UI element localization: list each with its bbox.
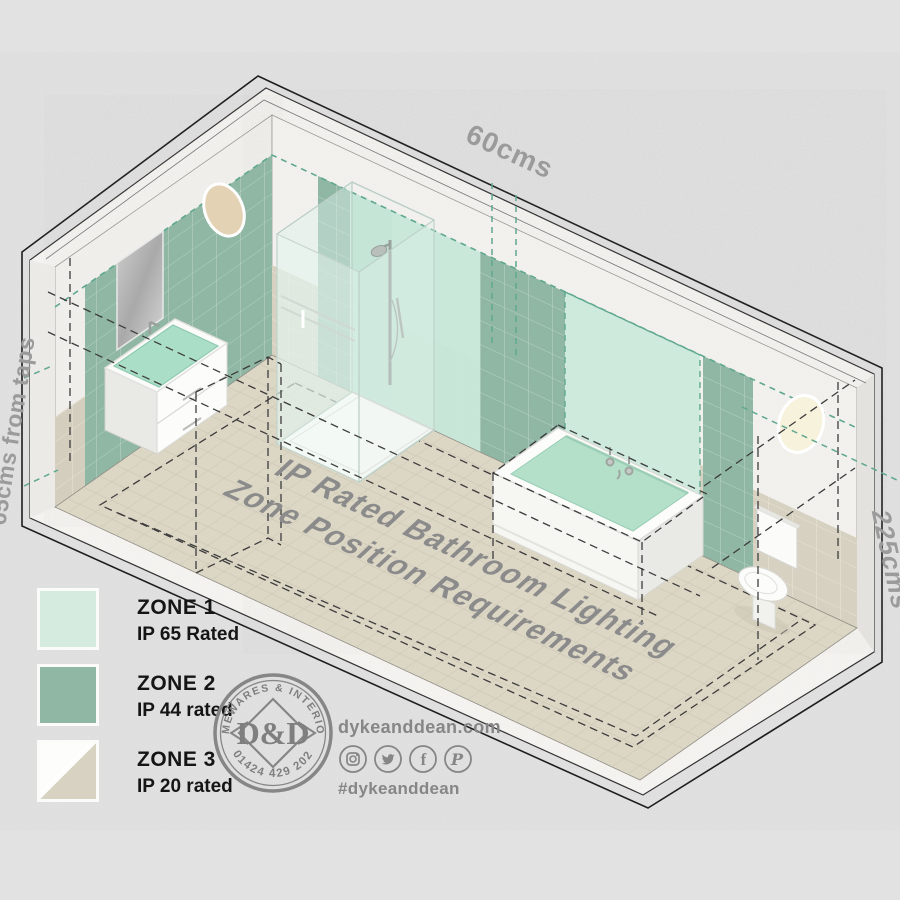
svg-text:P: P xyxy=(450,750,464,769)
logo-arc-bottom-text: 01424 429 202 xyxy=(230,748,316,780)
zone1-swatch xyxy=(37,588,99,650)
infographic-canvas: IP Rated Bathroom Lighting Zone Position… xyxy=(0,0,900,900)
svg-text:01424 429 202: 01424 429 202 xyxy=(230,748,316,780)
brand-stamp-logo: HOMEWARES & INTERIORS 01424 429 202 D&D xyxy=(203,663,343,803)
twitter-icon xyxy=(373,744,403,774)
zone1-label: ZONE 1 xyxy=(137,594,239,621)
zone2-swatch xyxy=(37,664,99,726)
left-wall-edge xyxy=(30,260,55,518)
logo-monogram: D&D xyxy=(237,715,310,751)
hashtag-text: #dykeanddean xyxy=(338,779,501,799)
facebook-icon: f xyxy=(408,744,438,774)
pinterest-icon: P xyxy=(443,744,473,774)
website-text: dykeanddean.com xyxy=(338,717,501,738)
social-icons-row: f P xyxy=(338,744,501,774)
zone3-swatch xyxy=(37,740,99,802)
contact-block: dykeanddean.com f P #dykeanddean xyxy=(338,717,501,799)
instagram-icon xyxy=(338,744,368,774)
zone1-rating: IP 65 Rated xyxy=(137,621,239,648)
svg-text:f: f xyxy=(421,750,427,769)
dimension-label-top: 60cms xyxy=(462,118,559,184)
legend-item-zone1: ZONE 1 IP 65 Rated xyxy=(37,588,239,650)
